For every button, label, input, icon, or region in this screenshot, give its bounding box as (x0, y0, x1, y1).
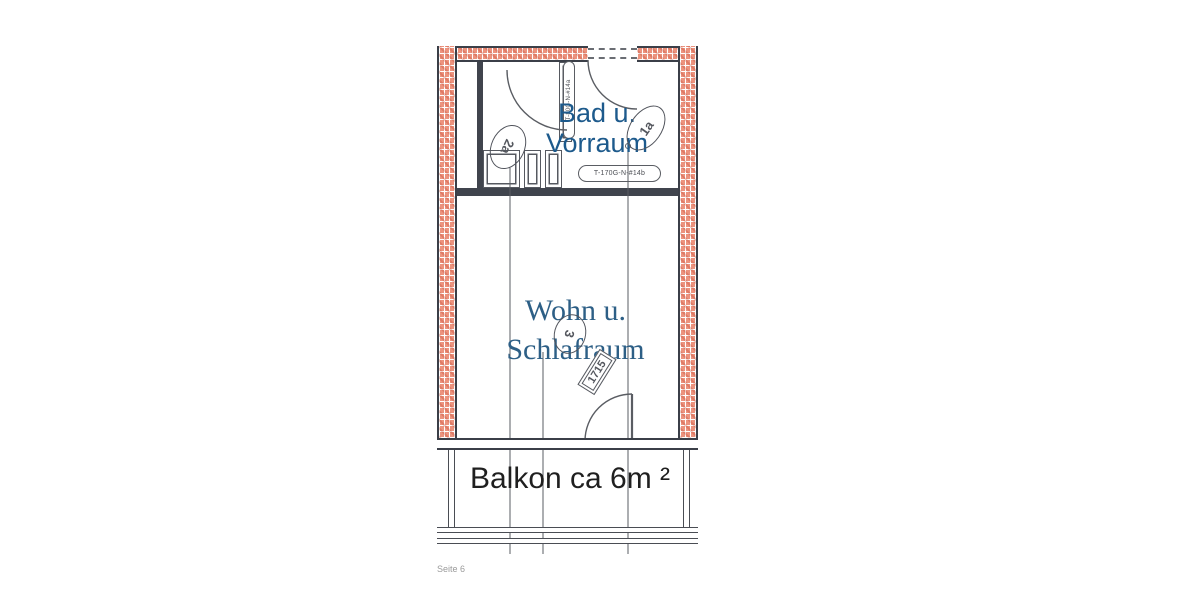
balcony-rail-outer (437, 527, 698, 533)
marker-1a-label: 1a (636, 118, 657, 138)
wall-left (437, 46, 457, 438)
marker-2a-label: 2a (498, 137, 518, 156)
balcony-window-band (437, 438, 698, 450)
wall-bathroom-separator (457, 188, 678, 196)
marker-3-label: 3 (562, 329, 578, 340)
bad-room-label: Bad u. Vorraum (497, 98, 697, 158)
bad-room-label-line1: Bad u. (497, 98, 697, 128)
wall-top-left-segment (437, 46, 588, 62)
entrance-opening-dash-upper (588, 48, 637, 50)
balkon-label: Balkon ca 6m ² (437, 462, 703, 496)
floorplan: T-80G-N-#14a T-170G-N-#14b Bad u. Vorrau… (437, 46, 698, 558)
entrance-opening-dash-lower (588, 57, 637, 59)
balcony-rail-edge (437, 538, 698, 544)
bad-room-label-line2: Vorraum (497, 128, 697, 158)
door-tag-top: T-170G-N-#14b (578, 165, 661, 182)
page-footer: Seite 6 (437, 564, 465, 574)
balkon-label-text: Balkon ca 6m ² (470, 462, 670, 495)
page-number-label: Seite 6 (437, 564, 465, 574)
door-tag-top-label: T-170G-N-#14b (594, 170, 645, 177)
